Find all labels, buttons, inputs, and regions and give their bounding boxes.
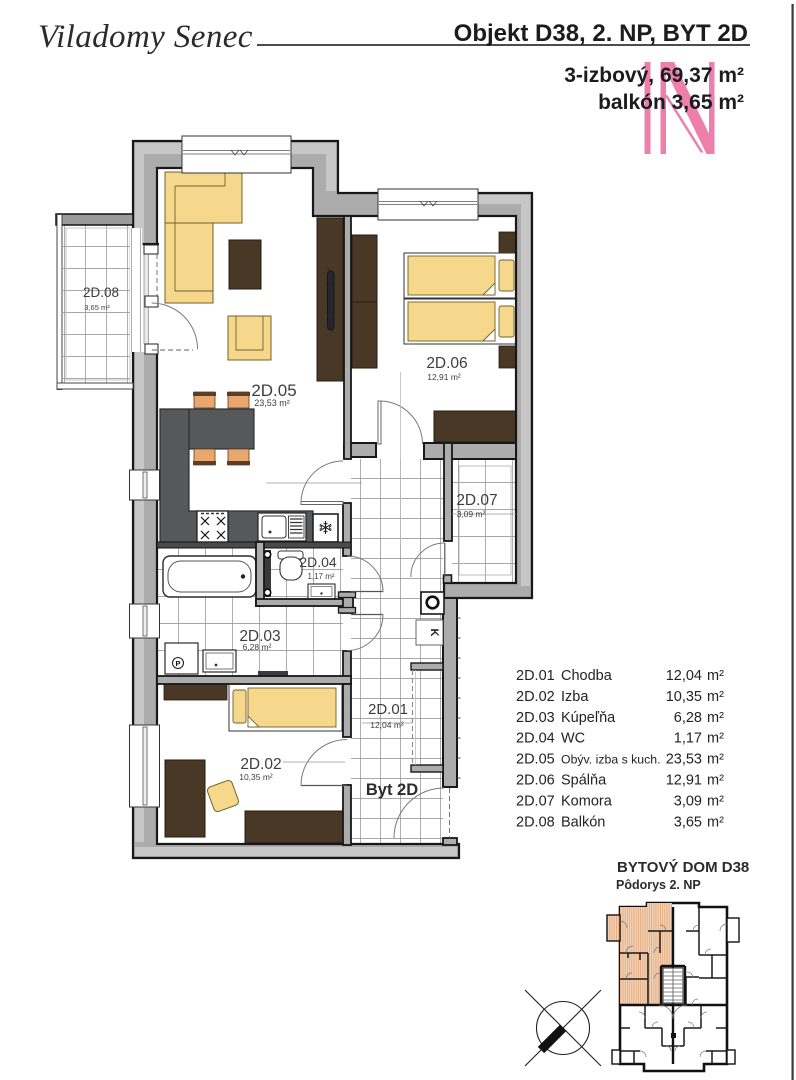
svg-text:m²: m² (707, 668, 724, 684)
svg-text:2D.03: 2D.03 (516, 710, 555, 726)
svg-text:m²: m² (707, 731, 724, 747)
svg-text:2D.04: 2D.04 (516, 731, 555, 747)
svg-text:m²: m² (707, 793, 724, 809)
svg-text:Byt 2D: Byt 2D (366, 781, 418, 799)
svg-text:12,04 m²: 12,04 m² (370, 720, 404, 730)
svg-text:Kúpeľňa: Kúpeľňa (561, 710, 616, 726)
svg-text:3,09 m²: 3,09 m² (457, 509, 486, 519)
svg-text:3,65: 3,65 (674, 814, 702, 830)
svg-text:2D.02: 2D.02 (240, 756, 281, 773)
svg-text:3,09: 3,09 (674, 793, 702, 809)
svg-text:m²: m² (707, 689, 724, 705)
svg-text:1,17: 1,17 (674, 731, 702, 747)
svg-text:Balkón: Balkón (561, 814, 605, 830)
svg-text:2D.08: 2D.08 (516, 814, 555, 830)
svg-text:12,91: 12,91 (666, 773, 702, 789)
svg-text:2D.08: 2D.08 (83, 285, 119, 300)
svg-text:P: P (175, 659, 180, 668)
svg-text:10,35 m²: 10,35 m² (239, 772, 273, 782)
svg-text:Objekt D38, 2. NP, BYT 2D: Objekt D38, 2. NP, BYT 2D (454, 20, 748, 47)
svg-text:10,35: 10,35 (666, 689, 702, 705)
svg-text:3,65 m²: 3,65 m² (84, 303, 110, 312)
svg-text:WC: WC (561, 731, 585, 747)
svg-text:Komora: Komora (561, 793, 613, 809)
svg-text:3-izbový, 69,37 m²: 3-izbový, 69,37 m² (564, 64, 744, 87)
svg-text:2D.04: 2D.04 (299, 554, 337, 570)
svg-text:Chodba: Chodba (561, 668, 613, 684)
svg-text:6,28: 6,28 (674, 710, 702, 726)
svg-text:1,17 m²: 1,17 m² (307, 572, 334, 581)
svg-text:2D.06: 2D.06 (426, 355, 467, 372)
svg-text:23,53 m²: 23,53 m² (254, 398, 290, 408)
svg-text:m²: m² (707, 814, 724, 830)
svg-text:Obýv. izba s kuch.: Obýv. izba s kuch. (561, 753, 661, 767)
svg-text:2D.05: 2D.05 (516, 752, 555, 768)
svg-text:K: K (428, 629, 440, 637)
svg-text:Spálňa: Spálňa (561, 773, 607, 789)
svg-text:2D.07: 2D.07 (456, 492, 497, 509)
svg-text:6,28 m²: 6,28 m² (243, 642, 272, 652)
svg-text:m²: m² (707, 752, 724, 768)
svg-text:12,04: 12,04 (666, 668, 702, 684)
svg-text:m²: m² (707, 710, 724, 726)
svg-text:Viladomy Senec: Viladomy Senec (38, 19, 253, 55)
svg-text:2D.06: 2D.06 (516, 773, 555, 789)
svg-text:balkón 3,65 m²: balkón 3,65 m² (598, 91, 744, 114)
svg-text:2D.02: 2D.02 (516, 689, 555, 705)
svg-text:Pôdorys 2. NP: Pôdorys 2. NP (616, 878, 701, 892)
svg-text:2D.07: 2D.07 (516, 793, 555, 809)
svg-text:2D.01: 2D.01 (516, 668, 555, 684)
svg-text:2D.01: 2D.01 (368, 701, 408, 718)
svg-text:23,53: 23,53 (666, 752, 702, 768)
svg-text:m²: m² (707, 773, 724, 789)
svg-text:BYTOVÝ DOM D38: BYTOVÝ DOM D38 (617, 858, 749, 876)
svg-text:12,91 m²: 12,91 m² (427, 372, 461, 382)
svg-text:Izba: Izba (561, 689, 589, 705)
